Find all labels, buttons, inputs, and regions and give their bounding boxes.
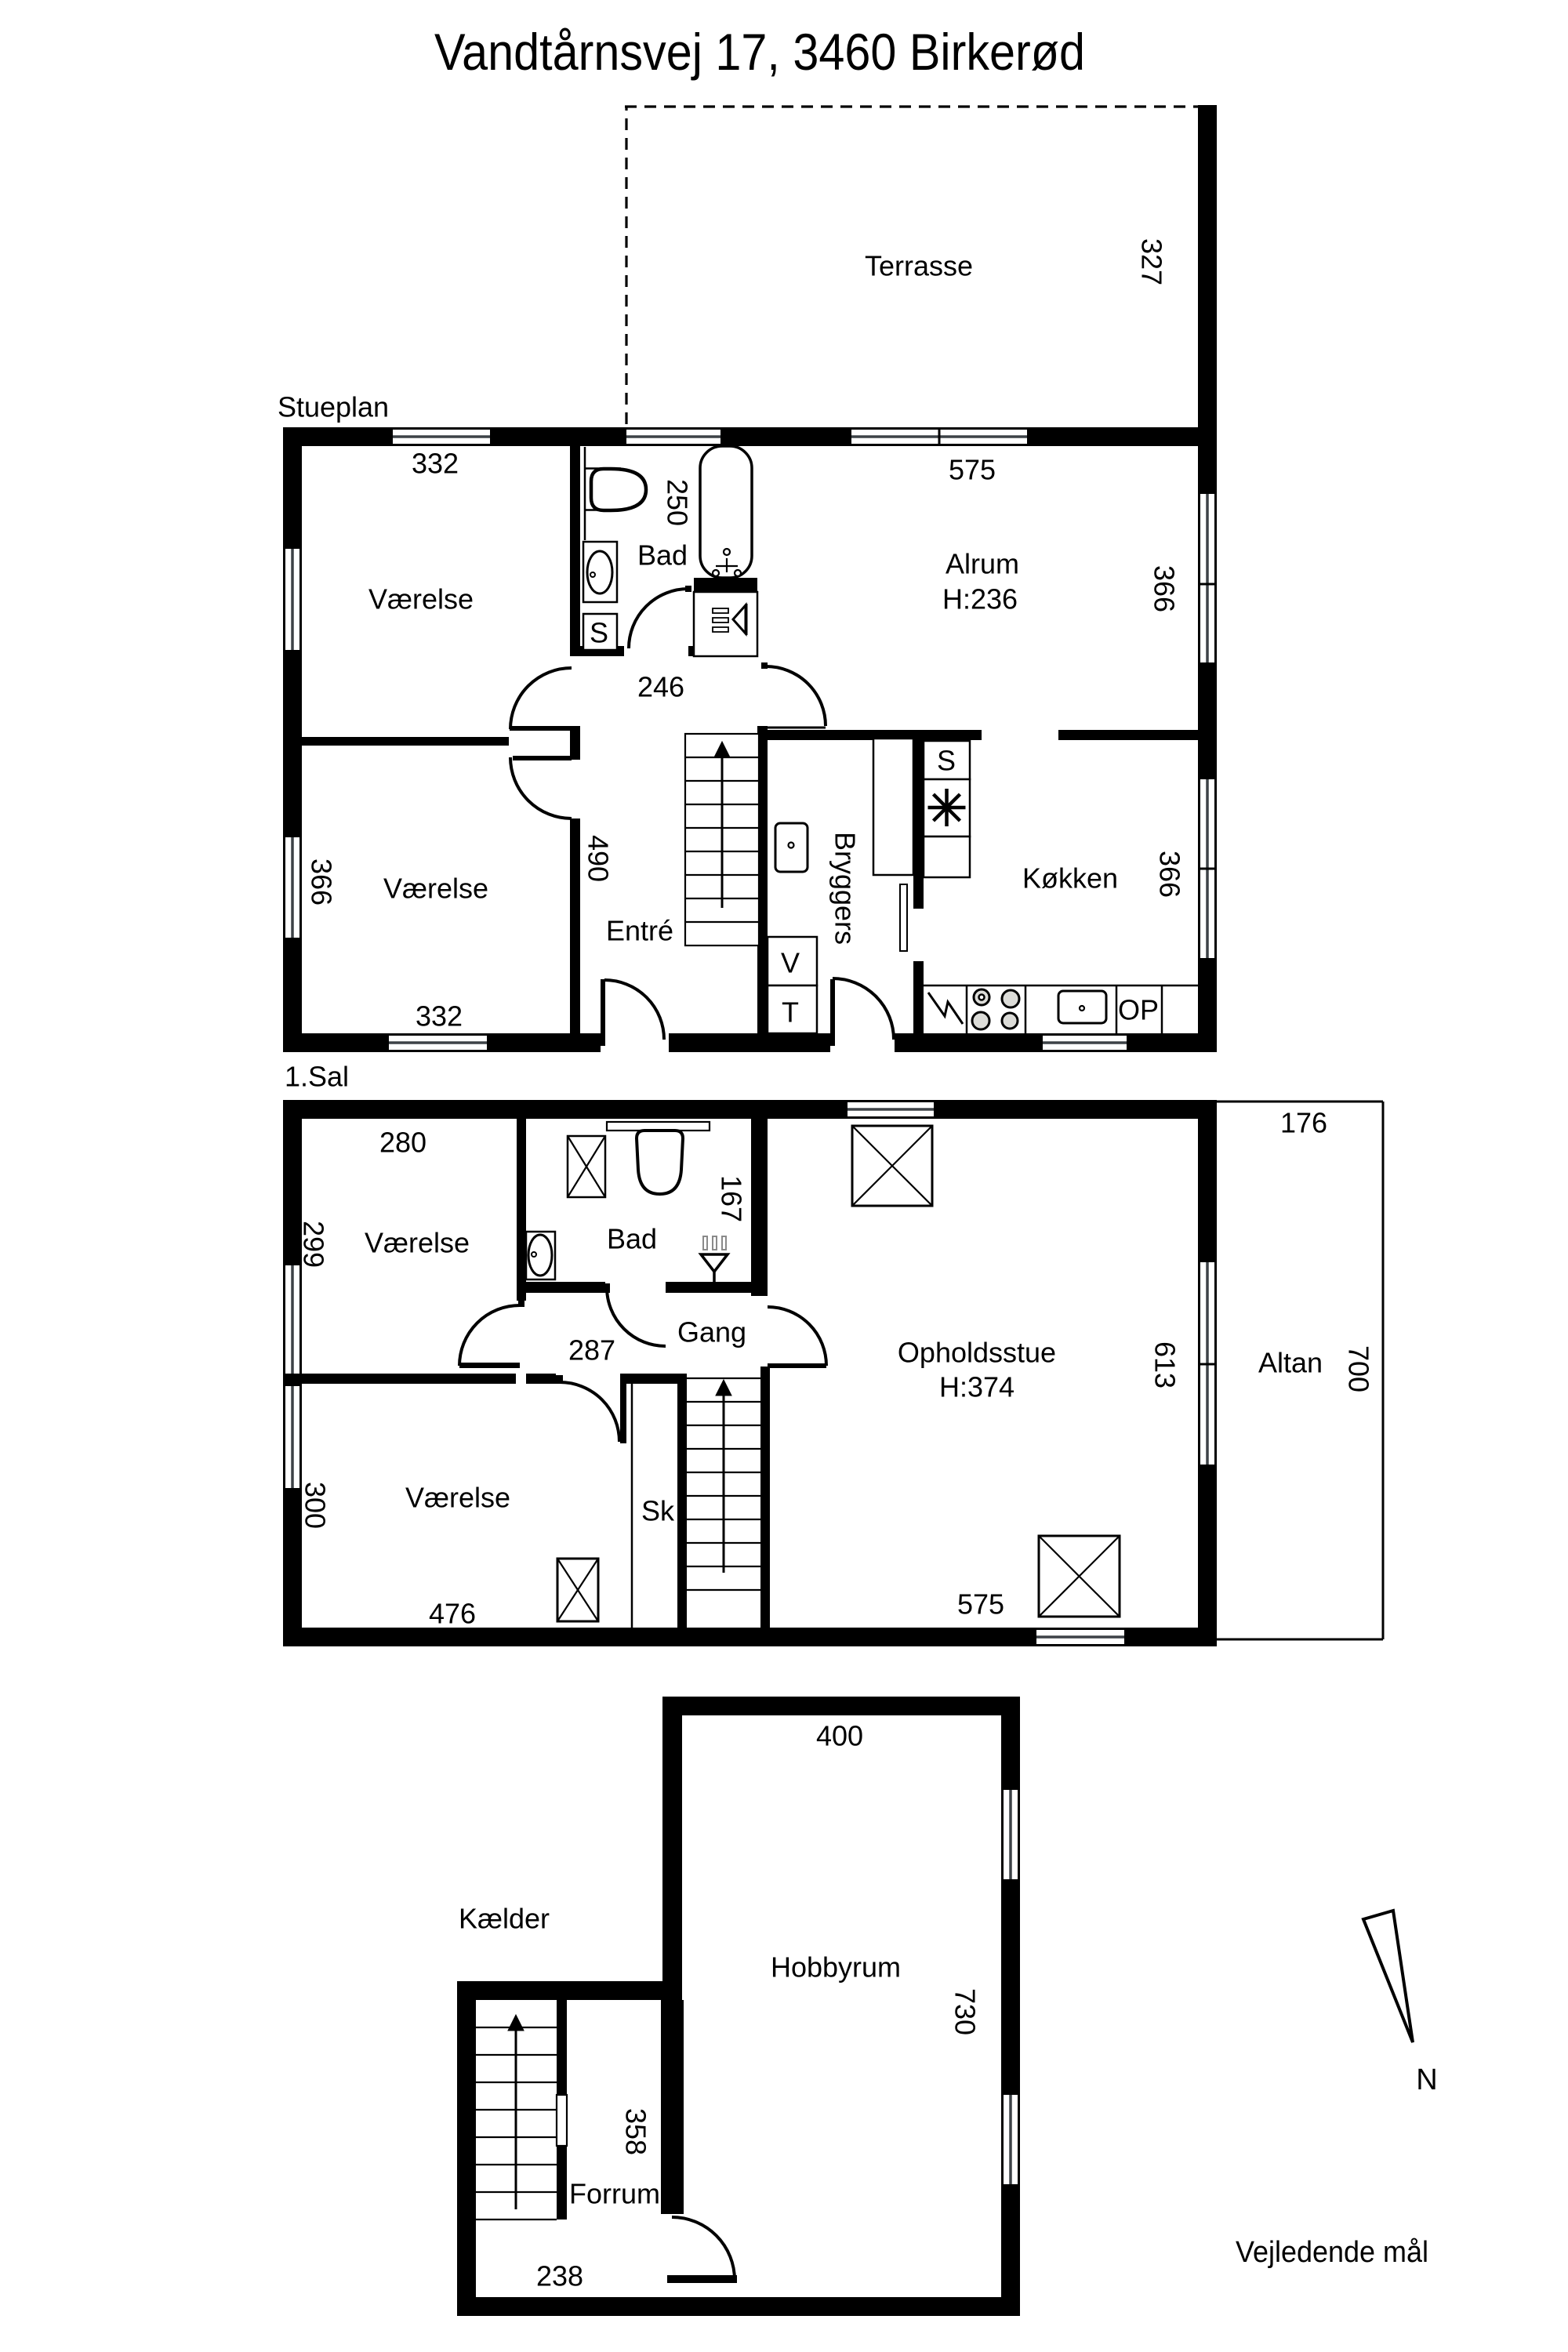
svg-text:Vandtårnsvej 17, 3460 Birkerød: Vandtårnsvej 17, 3460 Birkerød — [434, 23, 1085, 81]
svg-text:238: 238 — [536, 2260, 583, 2292]
svg-text:H:374: H:374 — [939, 1371, 1014, 1403]
svg-text:246: 246 — [637, 671, 684, 703]
svg-text:Vejledende mål: Vejledende mål — [1236, 2236, 1428, 2269]
svg-text:Sk: Sk — [641, 1495, 675, 1527]
svg-text:Terrasse: Terrasse — [865, 250, 973, 282]
svg-text:300: 300 — [299, 1482, 332, 1529]
svg-text:366: 366 — [1149, 565, 1181, 612]
svg-text:Værelse: Værelse — [383, 873, 488, 905]
svg-text:490: 490 — [583, 835, 615, 882]
svg-text:613: 613 — [1149, 1341, 1181, 1388]
svg-text:Kælder: Kælder — [459, 1903, 550, 1935]
svg-text:Køkken: Køkken — [1022, 862, 1118, 895]
svg-text:Hobbyrum: Hobbyrum — [771, 1951, 901, 1984]
svg-text:280: 280 — [379, 1127, 426, 1159]
svg-text:332: 332 — [412, 448, 459, 480]
svg-text:299: 299 — [298, 1221, 330, 1268]
svg-text:400: 400 — [816, 1720, 863, 1752]
svg-text:Forrum: Forrum — [569, 2178, 660, 2210]
svg-text:OP: OP — [1118, 994, 1159, 1026]
svg-text:Entré: Entré — [606, 915, 673, 947]
svg-text:327: 327 — [1136, 238, 1168, 285]
svg-text:Opholdsstue: Opholdsstue — [898, 1337, 1056, 1369]
svg-text:Bryggers: Bryggers — [829, 832, 862, 945]
svg-text:332: 332 — [416, 1000, 463, 1033]
svg-text:176: 176 — [1280, 1107, 1327, 1139]
svg-text:287: 287 — [568, 1334, 615, 1367]
svg-text:V: V — [781, 947, 800, 979]
svg-text:575: 575 — [957, 1588, 1004, 1621]
svg-text:Gang: Gang — [677, 1316, 746, 1348]
svg-text:S: S — [590, 617, 608, 649]
svg-text:Værelse: Værelse — [368, 583, 474, 615]
svg-text:730: 730 — [949, 1988, 982, 2035]
svg-text:Værelse: Værelse — [365, 1227, 470, 1259]
svg-text:358: 358 — [620, 2108, 652, 2155]
svg-text:Værelse: Værelse — [405, 1482, 510, 1514]
svg-text:476: 476 — [429, 1598, 476, 1630]
svg-text:T: T — [782, 996, 799, 1029]
svg-text:Bad: Bad — [637, 539, 688, 572]
svg-text:Altan: Altan — [1258, 1347, 1323, 1379]
svg-text:Bad: Bad — [607, 1223, 657, 1255]
svg-text:1.Sal: 1.Sal — [285, 1061, 349, 1093]
svg-text:H:236: H:236 — [942, 583, 1018, 615]
svg-text:S: S — [937, 745, 956, 777]
svg-text:Stueplan: Stueplan — [278, 391, 389, 423]
svg-text:250: 250 — [662, 479, 694, 526]
svg-text:700: 700 — [1343, 1345, 1375, 1392]
svg-text:Alrum: Alrum — [946, 548, 1019, 580]
svg-text:167: 167 — [716, 1175, 748, 1222]
svg-text:366: 366 — [1154, 851, 1186, 898]
svg-text:N: N — [1416, 2063, 1437, 2096]
svg-text:366: 366 — [306, 858, 338, 906]
svg-text:575: 575 — [949, 454, 996, 486]
